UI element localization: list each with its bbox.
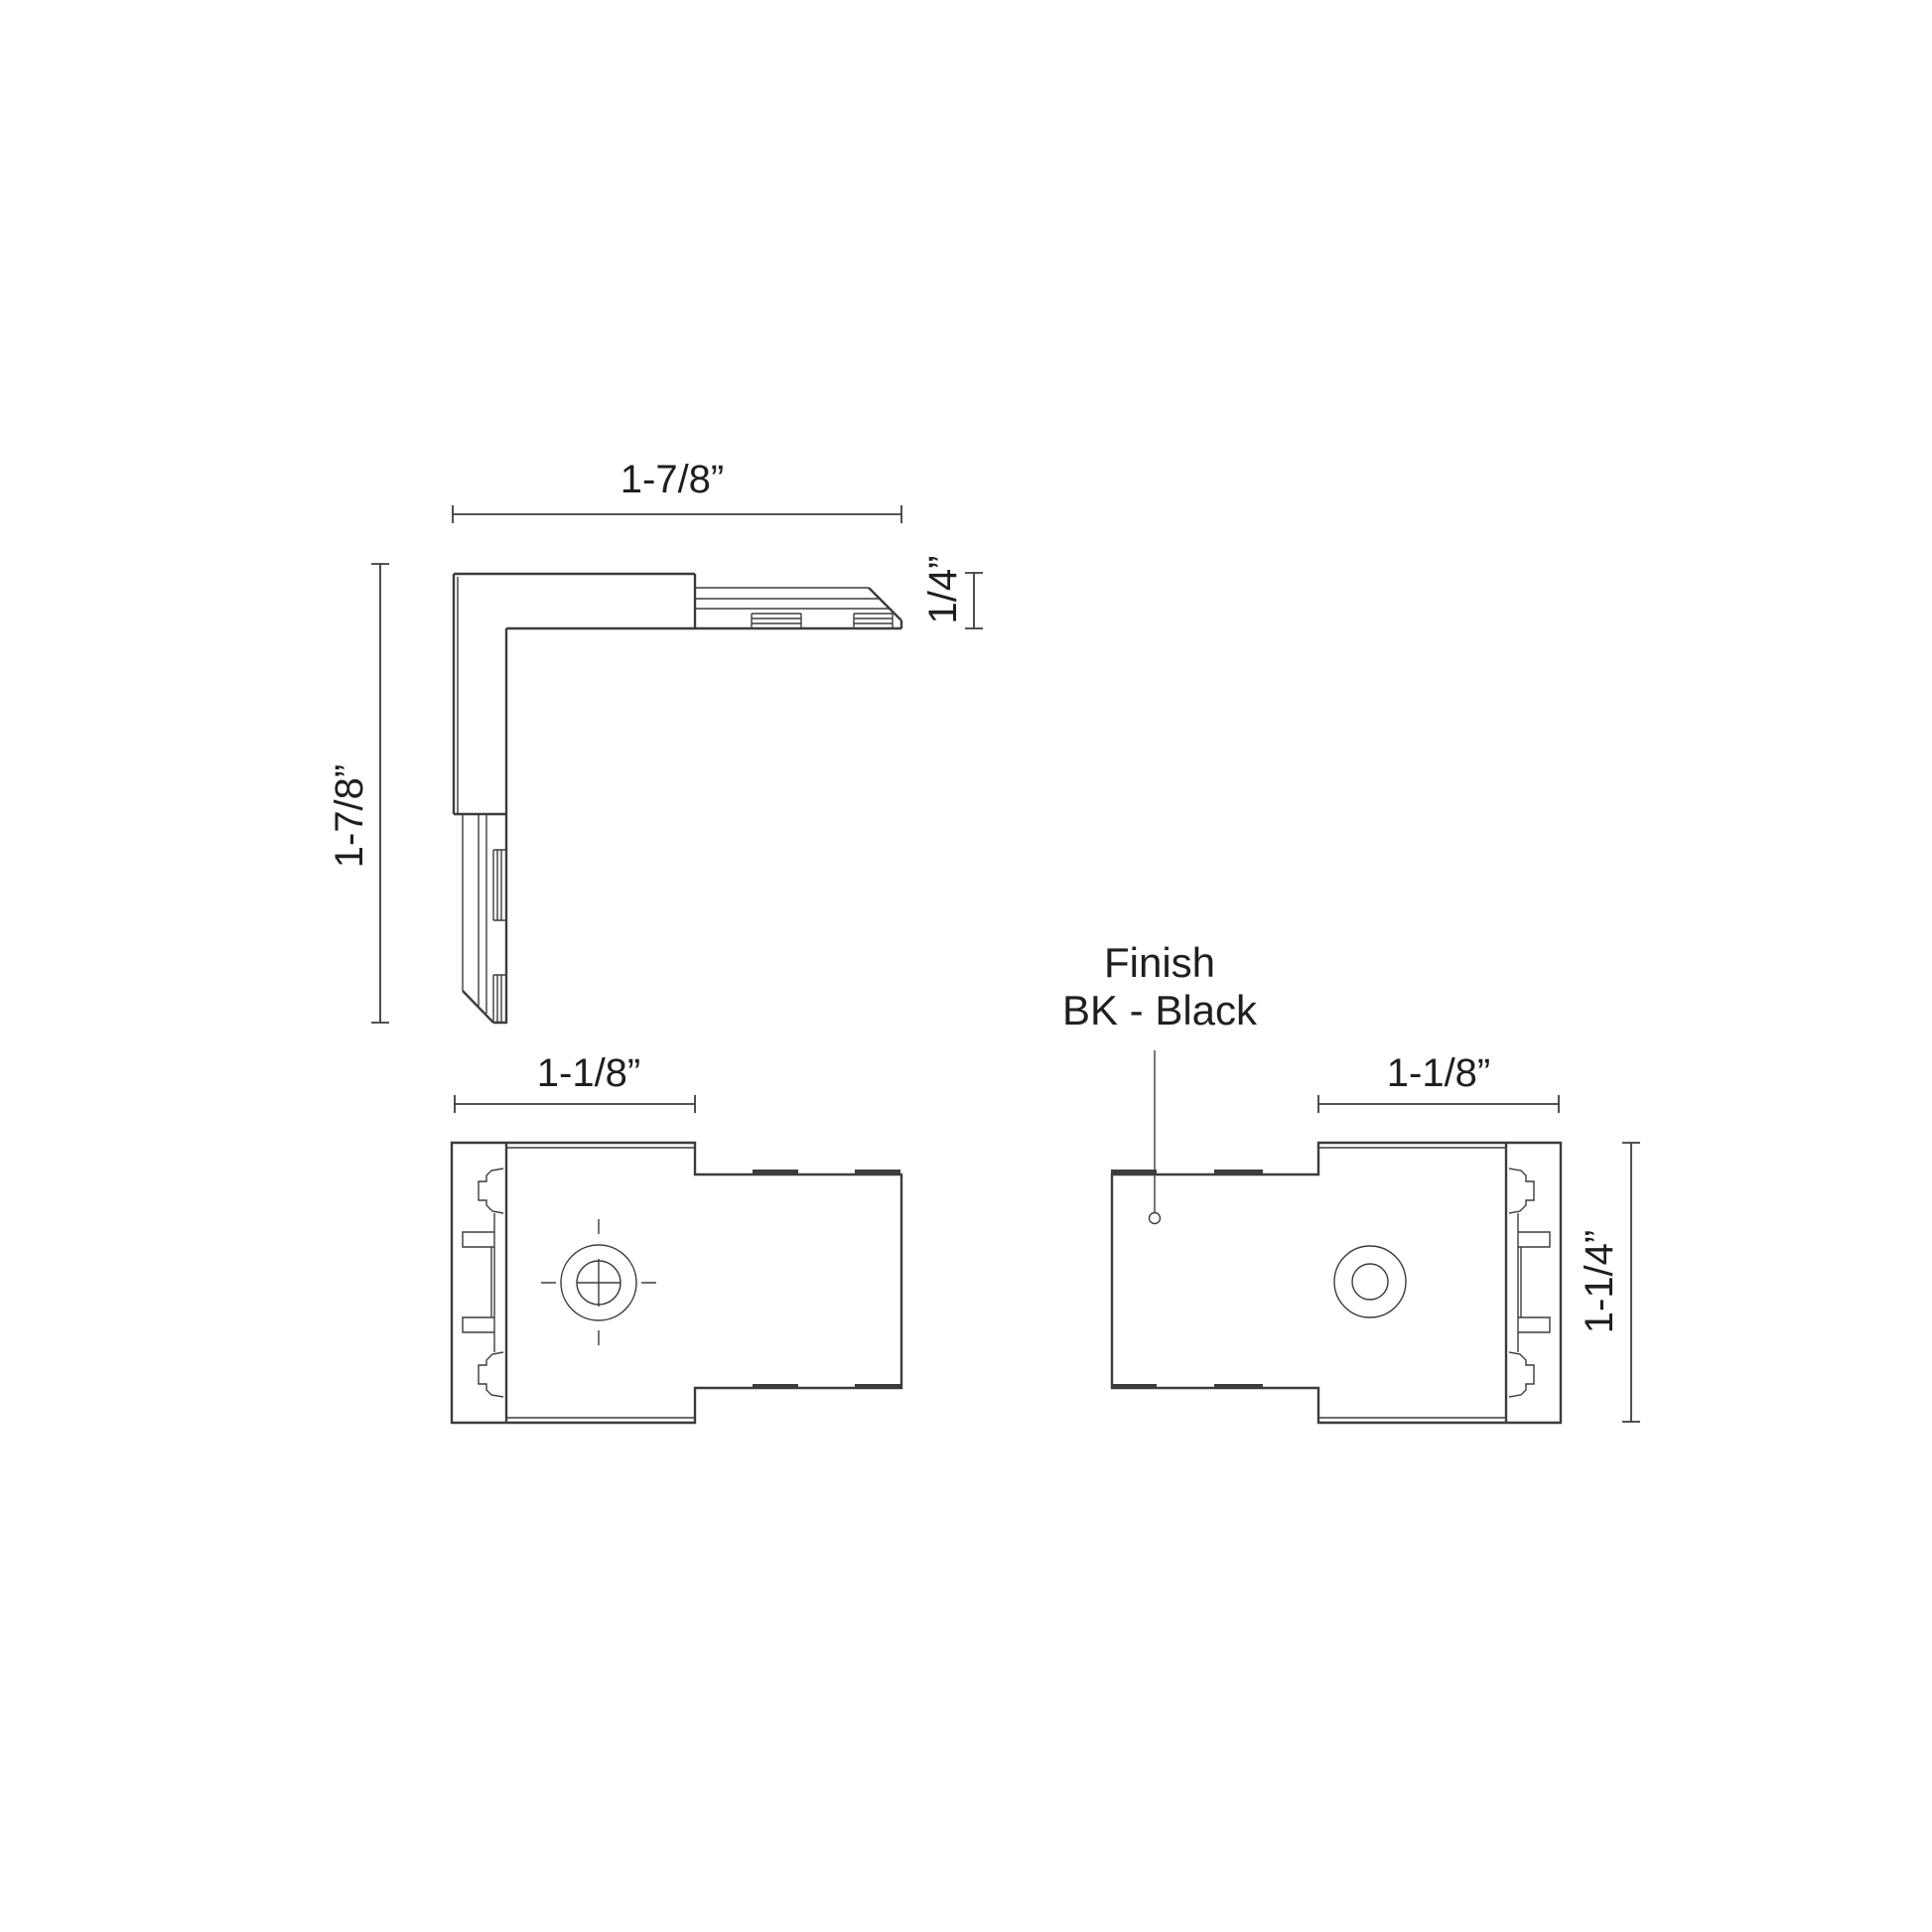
front-body-outline xyxy=(452,1143,901,1423)
dimension-front-width: 1-1/8” xyxy=(455,1051,695,1113)
contact-pad xyxy=(1214,1170,1263,1174)
dimension-top-width: 1-7/8” xyxy=(453,458,901,523)
contact-pad xyxy=(1111,1384,1157,1389)
front-flange-clips xyxy=(463,1169,503,1397)
contact-pad xyxy=(753,1384,798,1389)
connector-front-view: 1-1/8” xyxy=(452,1051,901,1423)
corner-connector-top-view: 1-7/8” 1-7/8” 1/4” xyxy=(328,458,983,1024)
dim-label-back-width: 1-1/8” xyxy=(1387,1051,1491,1095)
horizontal-blade xyxy=(695,588,901,628)
technical-drawing: 1-7/8” 1-7/8” 1/4” xyxy=(0,0,1932,1932)
dimension-back-height: 1-1/4” xyxy=(1578,1143,1640,1422)
contact-pad xyxy=(855,1384,900,1389)
contact-pad xyxy=(855,1170,900,1174)
contact-pad xyxy=(753,1170,798,1174)
corner-block-outline xyxy=(454,574,901,1024)
front-screw-hole xyxy=(541,1219,656,1345)
dim-label-top-thickness: 1/4” xyxy=(921,556,965,624)
dimension-back-width: 1-1/8” xyxy=(1318,1051,1559,1113)
contact-pad xyxy=(1214,1384,1263,1389)
contact-pad xyxy=(1111,1170,1157,1174)
drawing-canvas: 1-7/8” 1-7/8” 1/4” xyxy=(0,0,1932,1932)
dimension-top-thickness: 1/4” xyxy=(921,556,983,628)
back-flange-clips xyxy=(1509,1169,1550,1397)
dimension-top-height: 1-7/8” xyxy=(328,564,389,1023)
connector-back-view: 1-1/8” 1-1/4” Finish BK - xyxy=(1062,939,1640,1423)
leader-dot xyxy=(1150,1213,1161,1224)
back-screw-hole xyxy=(1334,1246,1406,1317)
dim-label-back-height: 1-1/4” xyxy=(1578,1230,1621,1334)
finish-title: Finish xyxy=(1104,939,1215,986)
finish-value: BK - Black xyxy=(1062,987,1258,1034)
dim-label-top-height: 1-7/8” xyxy=(328,764,371,869)
dim-label-top-width: 1-7/8” xyxy=(621,458,725,501)
finish-annotation: Finish BK - Black xyxy=(1062,939,1258,1224)
back-body-outline xyxy=(1111,1143,1561,1423)
dim-label-front-width: 1-1/8” xyxy=(537,1051,641,1095)
vertical-blade xyxy=(463,814,506,1023)
